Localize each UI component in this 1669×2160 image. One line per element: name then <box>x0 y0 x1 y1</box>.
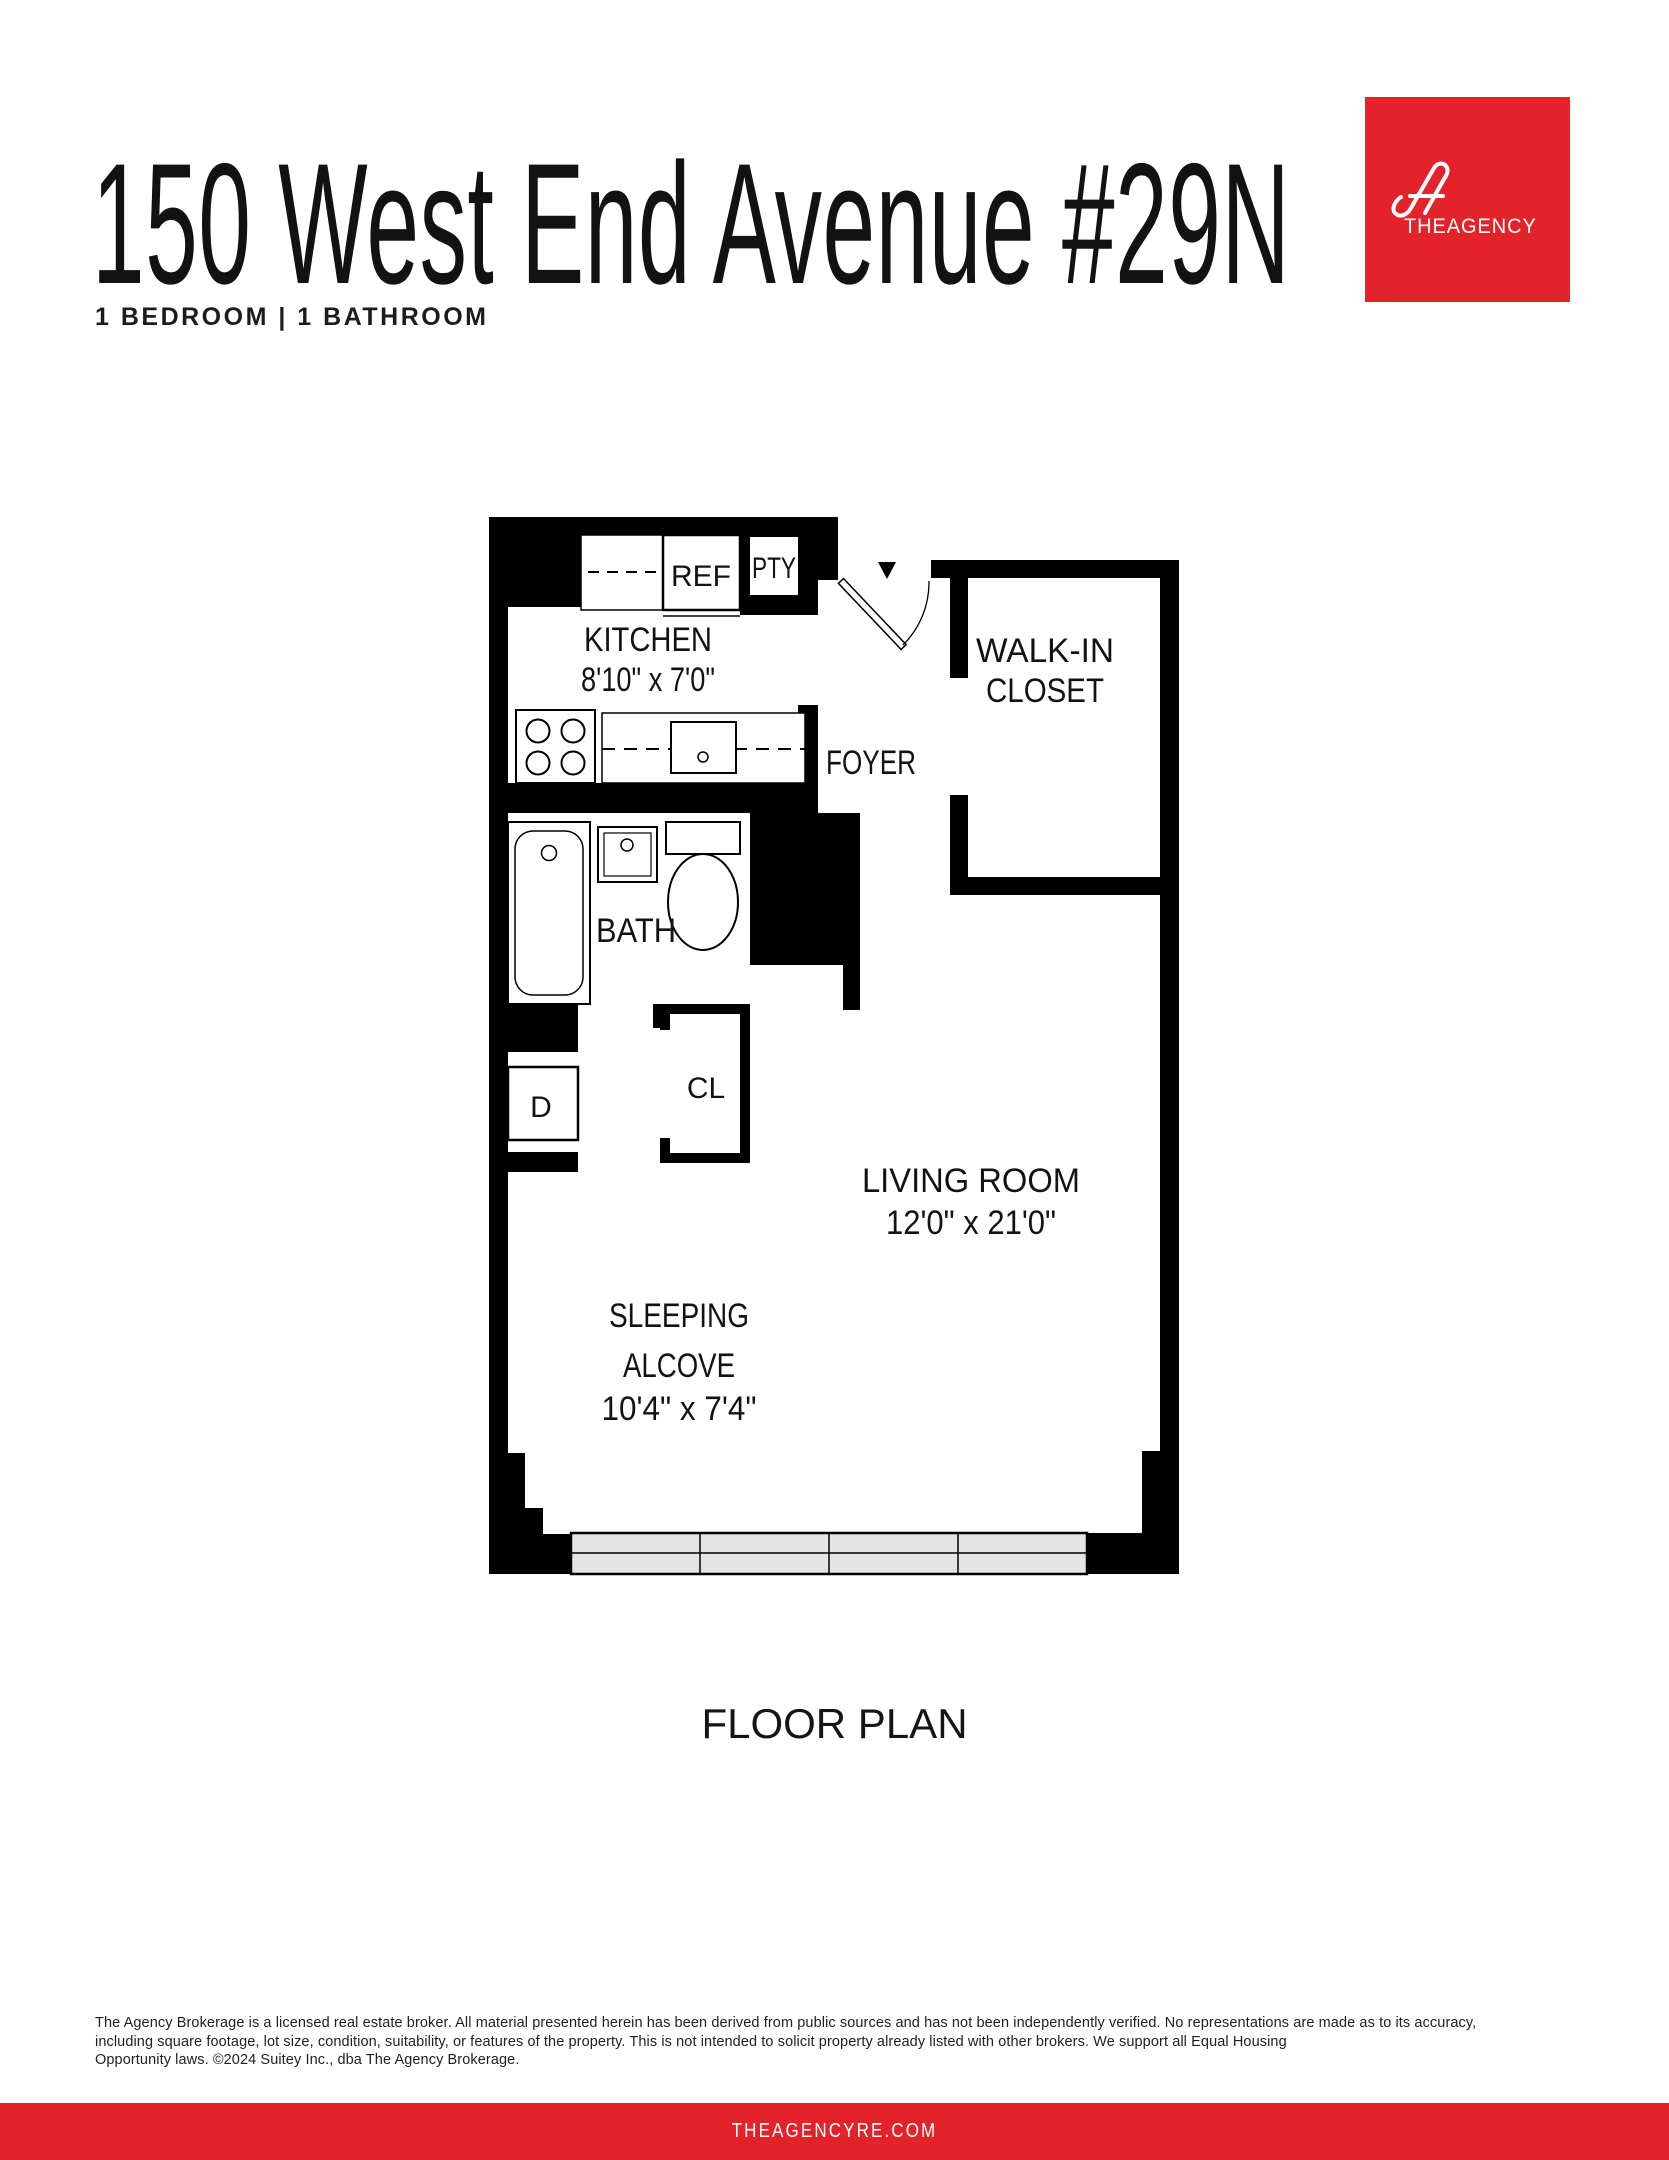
disclaimer-line-3: Opportunity laws. ©2024 Suitey Inc., dba… <box>95 2051 1595 2070</box>
kitchen-label: KITCHEN <box>584 621 712 659</box>
entry-arrow-icon <box>878 562 896 579</box>
walkin-closet-label-2: CLOSET <box>986 672 1104 710</box>
page-title: 150 West End Avenue #29N <box>92 138 1290 310</box>
ref-label: REF <box>671 560 731 593</box>
toilet-bowl <box>668 854 738 950</box>
footer-bar: THEAGENCYRE.COM <box>0 2103 1669 2160</box>
closet-label: CL <box>687 1072 725 1105</box>
walkin-closet-label-1: WALK-IN <box>976 632 1114 670</box>
wordmark-the: THE <box>1404 215 1447 238</box>
flyer-page: 150 West End Avenue #29N 1 BEDROOM | 1 B… <box>0 0 1669 2160</box>
floor-plan-caption: FLOOR PLAN <box>0 1700 1669 1748</box>
floor-plan-drawing: REF PTY KITCHEN 8'10" x 7'0" FOYER WALK-… <box>480 500 1190 1590</box>
dryer-label: D <box>530 1091 552 1124</box>
agency-wordmark: THEAGENCY <box>1404 215 1537 239</box>
living-room-label: LIVING ROOM <box>862 1162 1080 1200</box>
kitchen-sink <box>671 722 736 773</box>
living-room-dims: 12'0" x 21'0" <box>886 1204 1056 1242</box>
stove <box>516 710 595 783</box>
bath-label: BATH <box>596 912 676 950</box>
agency-a-icon <box>1379 151 1463 223</box>
page-subtitle: 1 BEDROOM | 1 BATHROOM <box>95 303 489 332</box>
agency-logo: THEAGENCY <box>1365 97 1570 302</box>
window-band <box>571 1533 1087 1574</box>
entry-door <box>838 562 929 649</box>
wordmark-agency: AGENCY <box>1447 215 1537 238</box>
sleeping-alcove-label-1: SLEEPING <box>609 1297 749 1335</box>
footer-website: THEAGENCYRE.COM <box>125 2103 1544 2160</box>
sleeping-alcove-label-2: ALCOVE <box>623 1347 735 1385</box>
disclaimer-line-1: The Agency Brokerage is a licensed real … <box>95 2014 1595 2033</box>
legal-disclaimer: The Agency Brokerage is a licensed real … <box>95 2014 1595 2070</box>
foyer-label: FOYER <box>826 744 916 782</box>
pty-label: PTY <box>752 552 796 585</box>
bathtub <box>508 822 590 1004</box>
toilet-tank <box>666 822 740 854</box>
sleeping-alcove-dims: 10'4" x 7'4" <box>602 1390 757 1428</box>
bath-sink <box>598 827 657 882</box>
disclaimer-line-2: including square footage, lot size, cond… <box>95 2033 1595 2052</box>
kitchen-dims: 8'10" x 7'0" <box>581 661 715 699</box>
